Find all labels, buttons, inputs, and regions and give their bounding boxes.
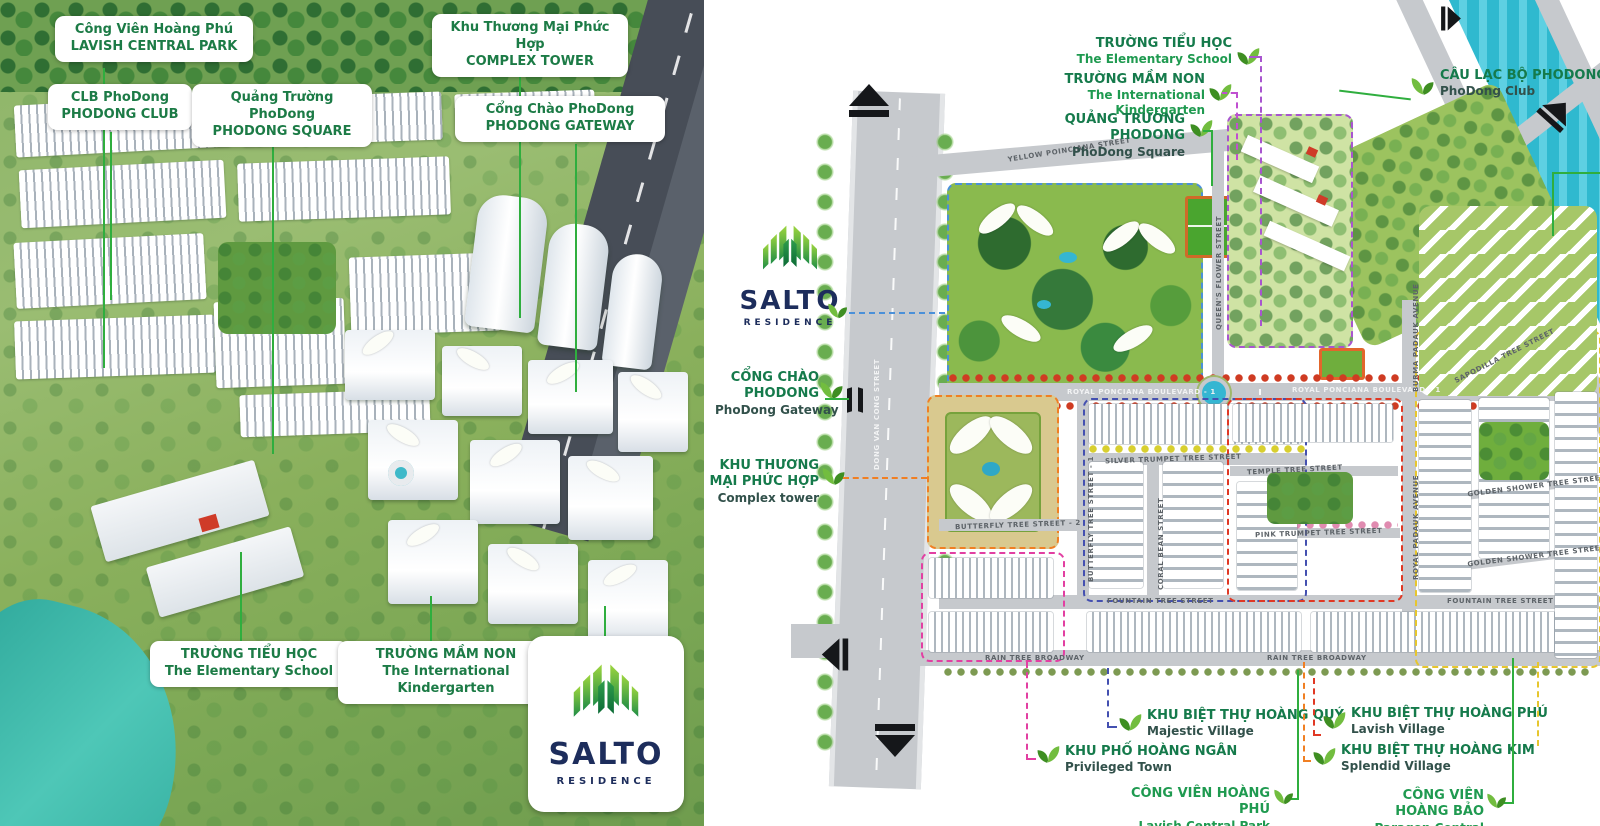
callout-square: QUẢNG TRƯỜNG PHODONG PhoDong Square (1007, 112, 1185, 160)
street-queens: QUEEN'S FLOWER STREET (1215, 216, 1223, 330)
leader-yellow-v (1537, 662, 1539, 746)
complex-pool (982, 462, 1000, 476)
callout-en: Complex tower (709, 491, 819, 506)
callout-lavish-village: KHU BIỆT THỰ HOÀNG PHÚ Lavish Village (1351, 706, 1548, 737)
leader-lavish-v (1313, 678, 1315, 736)
leader-elementary-v (1260, 56, 1262, 326)
salto-logo-card: SALTO RESIDENCE (528, 636, 684, 812)
callout-lavish-park: CÔNG VIÊN HOÀNG PHÚ Lavish Central Park (1102, 786, 1270, 826)
leaf-icon (1035, 744, 1061, 765)
leaf-icon (1117, 712, 1143, 733)
leaf-icon (827, 302, 849, 320)
callout-vi: KHU BIỆT THỰ HOÀNG PHÚ (1351, 706, 1548, 722)
callout-paragon: CÔNG VIÊN HOÀNG BẢO Paragon Central Park (1352, 788, 1484, 826)
leaf-icon (1311, 746, 1337, 767)
aerial-render-panel: Công Viên Hoàng Phú LAVISH CENTRAL PARK … (0, 0, 704, 826)
villa-rows (1419, 400, 1471, 592)
callout-club: CÂU LẠC BỘ PHODONG PhoDong Club (1440, 68, 1600, 99)
label-lavish-central-park: Công Viên Hoàng Phú LAVISH CENTRAL PARK (55, 16, 253, 62)
leaf-icon (1486, 792, 1508, 810)
soccer-field (1185, 196, 1233, 258)
townhouse-rows (14, 315, 216, 380)
townhouse-rows (1233, 404, 1393, 442)
callout-vi: TRƯỜNG MẦM NON (1029, 72, 1205, 88)
leader-paragon-v (1512, 658, 1514, 804)
arrow-north (849, 84, 889, 117)
leader-gateway (825, 398, 849, 400)
label-kindergarten: TRƯỜNG MẦM NON The International Kinderg… (338, 641, 554, 704)
arrow-south (875, 724, 915, 757)
street-rain-b: RAIN TREE BROADWAY (1267, 654, 1367, 662)
callout-vi: CÂU LẠC BỘ PHODONG (1440, 68, 1600, 84)
salto-logo-icon (754, 222, 826, 282)
street-royal-ponciana-a: ROYAL PONCIANA BOULEVARD - 1 (1067, 388, 1216, 396)
callout-vi: CÔNG VIÊN HOÀNG BẢO (1352, 788, 1484, 821)
label-en: The Elementary School (158, 664, 340, 681)
townhouse-rows (929, 612, 1053, 652)
leader-line (430, 596, 432, 641)
label-phodong-gateway: Cổng Chào PhoDong PHODONG GATEWAY (455, 96, 665, 142)
label-en: PHODONG SQUARE (200, 124, 364, 141)
label-vi: Khu Thương Mại Phức Hợp (440, 20, 620, 54)
leader-privileged-v (1026, 662, 1028, 760)
leader-line (575, 144, 577, 392)
leader-line (272, 132, 274, 454)
leaf-icon (1273, 788, 1295, 806)
leader-lavish-park-v (1297, 670, 1299, 800)
street-fountain-a: FOUNTAIN TREE STREET (1107, 597, 1214, 605)
townhouse-rows (19, 160, 227, 229)
leader-kindergarten-v (1236, 92, 1238, 160)
callout-en: Splendid Village (1341, 759, 1535, 774)
label-vi: Quảng Trường PhoDong (200, 90, 364, 124)
callout-en: Lavish Village (1351, 722, 1548, 737)
callout-en: The Elementary School (1062, 52, 1232, 67)
arrow-west (822, 639, 848, 671)
street-fountain-b: FOUNTAIN TREE STREET (1447, 597, 1554, 605)
salto-logo-icon (563, 661, 649, 731)
leader-majestic-h (1107, 726, 1117, 728)
masterplan-panel: DONG VAN CONG STREET YELLOW POINCIANA ST… (707, 0, 1600, 826)
callout-vi: KHU PHỐ HOÀNG NGÂN (1065, 744, 1237, 760)
label-complex-tower: Khu Thương Mại Phức Hợp COMPLEX TOWER (432, 14, 628, 77)
label-en: LAVISH CENTRAL PARK (63, 39, 245, 56)
leader-majestic-v (1107, 668, 1109, 728)
temple-park (1267, 472, 1353, 524)
brand-tagline: RESIDENCE (556, 776, 655, 787)
label-elementary-school: TRƯỜNG TIỂU HỌC The Elementary School (150, 641, 348, 687)
apartment-block (368, 420, 458, 500)
label-en: COMPLEX TOWER (440, 54, 620, 71)
callout-en: PhoDong Square (1007, 145, 1185, 160)
callout-vi: CỔNG CHÀO PHODONG (715, 370, 819, 403)
leaf-icon (1321, 710, 1347, 731)
label-vi: CLB PhoDong (56, 90, 184, 107)
label-phodong-club: CLB PhoDong PHODONG CLUB (48, 84, 192, 130)
street-butterfly-1: BUTTERFLY TREE STREET - 1 (1087, 456, 1095, 582)
callout-en: PhoDong Gateway (715, 403, 819, 418)
callout-en: Privileged Town (1065, 760, 1237, 775)
label-vi: Công Viên Hoàng Phú (63, 22, 245, 39)
park-pool (1059, 252, 1077, 263)
label-en: PHODONG GATEWAY (463, 119, 657, 136)
leader-line (604, 606, 606, 638)
pocket-park (1479, 422, 1549, 480)
brand-name: SALTO (549, 737, 664, 772)
callout-vi: QUẢNG TRƯỜNG PHODONG (1007, 112, 1185, 145)
arrow-top-edge (1441, 6, 1461, 30)
callout-gateway: CỔNG CHÀO PHODONG PhoDong Gateway (715, 370, 819, 418)
callout-elementary: TRƯỜNG TIỂU HỌC The Elementary School (1062, 36, 1232, 67)
callout-vi: CÔNG VIÊN HOÀNG PHÚ (1102, 786, 1270, 819)
callout-complex: KHU THƯƠNG MẠI PHỨC HỢP Complex tower (709, 458, 819, 506)
leader-club (1339, 90, 1411, 101)
park-pool (1037, 300, 1051, 309)
label-vi: Cổng Chào PhoDong (463, 102, 657, 119)
callout-vi: KHU THƯƠNG MẠI PHỨC HỢP (709, 458, 819, 491)
villa-rows (1555, 392, 1597, 658)
townhouse-rows (1087, 612, 1301, 652)
label-vi: TRƯỜNG MẦM NON (346, 647, 546, 664)
label-phodong-square: Quảng Trường PhoDong PHODONG SQUARE (192, 84, 372, 147)
street-royal-padauk: ROYAL PADAUK AVENUE (1412, 475, 1420, 580)
leaf-icon (1410, 76, 1436, 97)
river-villas (1419, 206, 1597, 396)
leader-lavish-h (1313, 734, 1321, 736)
garden-court (218, 242, 336, 334)
callout-vi: TRƯỜNG TIỂU HỌC (1062, 36, 1232, 52)
street-burma-padauk: BURMA PADAUK AVENUE (1412, 283, 1420, 392)
apartment-block (488, 544, 578, 624)
leader-club-edge-h (1552, 172, 1600, 174)
label-en: PHODONG CLUB (56, 107, 184, 124)
leader-line (110, 132, 112, 300)
leader-splendid-v (1303, 662, 1305, 762)
label-en: The International Kindergarten (346, 664, 546, 698)
leader-splendid-h (1303, 760, 1311, 762)
fountain-roundabout (388, 460, 414, 486)
zone-central-park (947, 183, 1203, 395)
callout-splendid: KHU BIỆT THỰ HOÀNG KIM Splendid Village (1341, 743, 1535, 774)
leader-kindergarten (1222, 92, 1236, 94)
leader-salto (849, 312, 945, 314)
leader-club-edge-v (1552, 172, 1554, 236)
callout-en: Paragon Central Park (1352, 821, 1484, 826)
townhouse-rows (1163, 462, 1223, 588)
callout-en: PhoDong Club (1440, 84, 1600, 99)
leader-complex (843, 477, 927, 479)
street-rain-a: RAIN TREE BROADWAY (985, 654, 1085, 662)
callout-en: Lavish Central Park (1102, 819, 1270, 826)
gateway-icon (847, 388, 865, 412)
street-dong-van-cong: DONG VAN CONG STREET (873, 359, 881, 470)
rain-trees (942, 668, 1592, 676)
label-vi: TRƯỜNG TIỂU HỌC (158, 647, 340, 664)
leader-line (240, 552, 242, 641)
salto-residence-brochure: Công Viên Hoàng Phú LAVISH CENTRAL PARK … (0, 0, 1600, 826)
leader-square-v (1211, 130, 1213, 186)
townhouse-rows (929, 558, 1053, 598)
callout-privileged: KHU PHỐ HOÀNG NGÂN Privileged Town (1065, 744, 1237, 775)
townhouse-rows (237, 156, 451, 221)
townhouse-rows (1089, 462, 1143, 588)
street-coral-bean: CORAL BEAN STREET (1157, 498, 1165, 590)
callout-vi: KHU BIỆT THỰ HOÀNG KIM (1341, 743, 1535, 759)
